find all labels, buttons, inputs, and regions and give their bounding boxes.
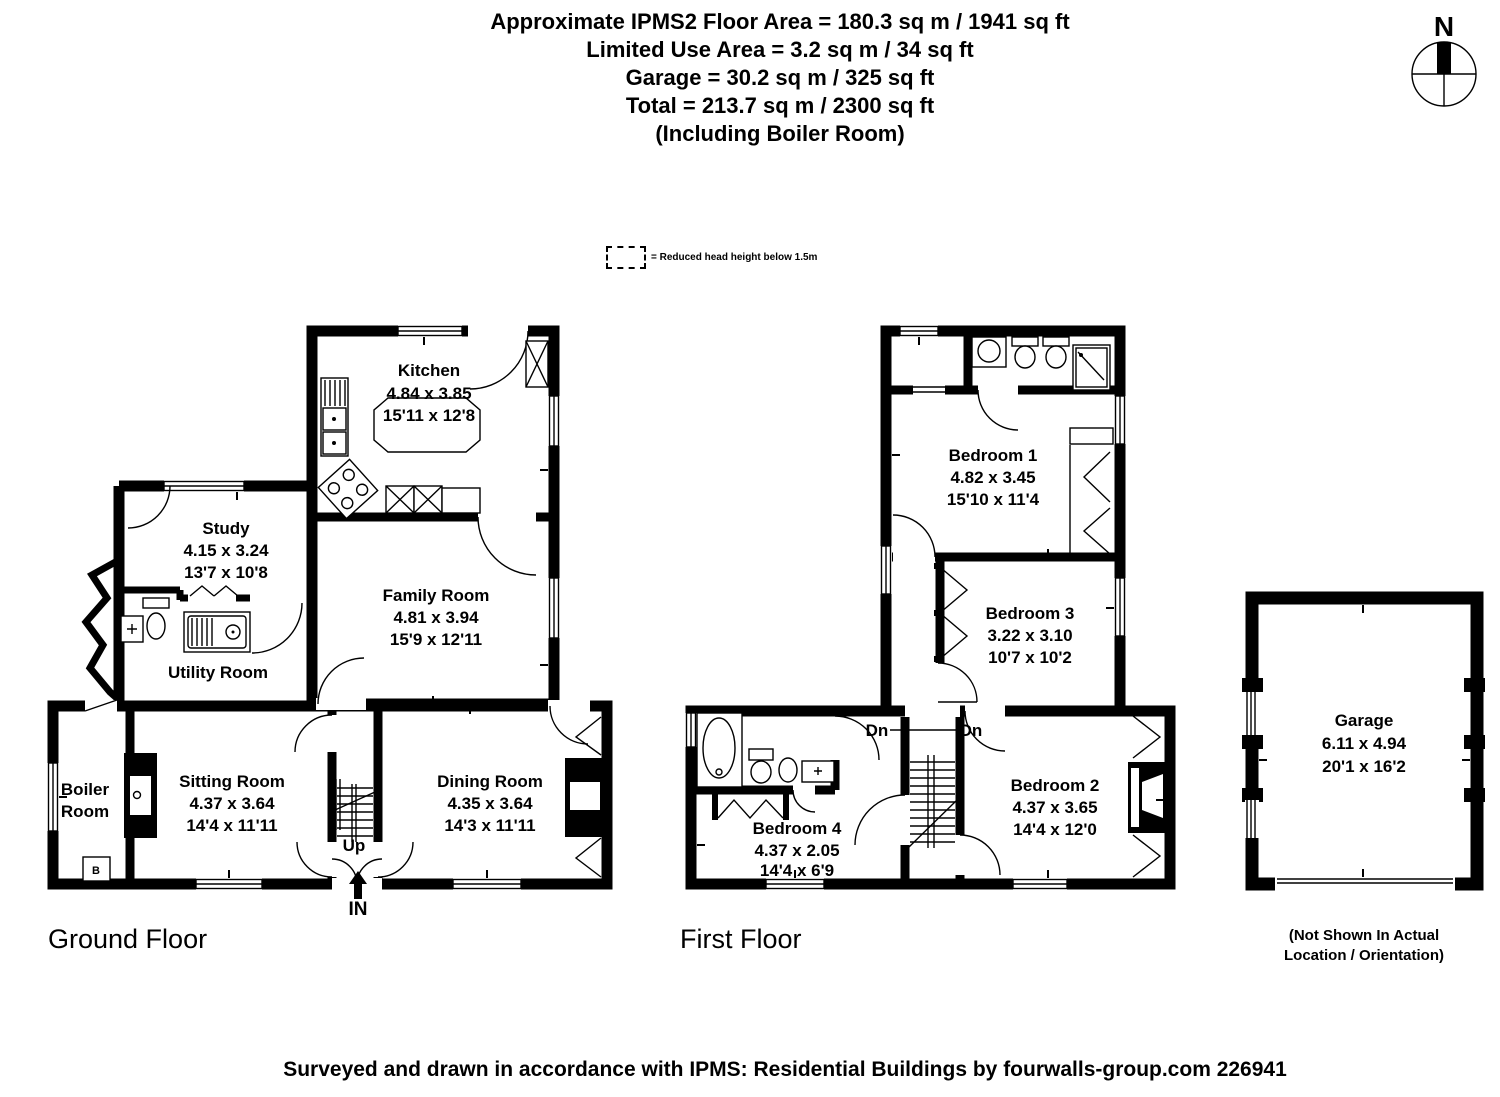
- family-room-imperial: 15'9 x 12'11: [390, 630, 482, 649]
- bedroom1-wardrobes: [1070, 428, 1113, 555]
- kitchen-sink-unit: [321, 378, 348, 456]
- dining-room-imperial: 14'3 x 11'11: [444, 816, 535, 835]
- family-room-name: Family Room: [383, 586, 490, 605]
- first-dimension-ticks: [697, 337, 1164, 878]
- first-floor-plan: Bedroom 1 4.82 x 3.45 15'10 x 11'4 Bedro…: [685, 325, 1170, 890]
- garage-imperial: 20'1 x 16'2: [1322, 757, 1406, 776]
- utility-sink: [184, 612, 250, 652]
- kitchen-cooker: [318, 459, 377, 518]
- stairs-dn-label-right: Dn: [960, 721, 983, 740]
- bathroom-fixtures: [697, 713, 834, 787]
- bedroom3-name: Bedroom 3: [986, 604, 1075, 623]
- study-imperial: 13'7 x 10'8: [184, 563, 268, 582]
- garage-metric: 6.11 x 4.94: [1322, 734, 1407, 753]
- stairwell-walls: [905, 711, 960, 884]
- garage-door: [1275, 877, 1455, 891]
- boiler-unit: B: [83, 857, 110, 881]
- dining-room-name: Dining Room: [437, 772, 543, 791]
- family-room-metric: 4.81 x 3.94: [393, 608, 479, 627]
- garage-name: Garage: [1335, 711, 1394, 730]
- utility-room-name: Utility Room: [168, 663, 268, 682]
- bedroom2-name: Bedroom 2: [1011, 776, 1100, 795]
- boiler-room-name-2: Room: [61, 802, 109, 821]
- study-metric: 4.15 x 3.24: [183, 541, 269, 560]
- wc-basin: [121, 616, 143, 642]
- floorplan-page: Approximate IPMS2 Floor Area = 180.3 sq …: [0, 0, 1500, 1097]
- bedroom1-imperial: 15'10 x 11'4: [947, 490, 1040, 509]
- bedroom2-imperial: 14'4 x 12'0: [1013, 820, 1097, 839]
- bathtub: [697, 713, 742, 787]
- bedroom3-metric: 3.22 x 3.10: [987, 626, 1072, 645]
- kitchen-name: Kitchen: [398, 361, 460, 380]
- ensuite-toilet-2: [1043, 337, 1069, 368]
- ensuite-fixtures: [972, 337, 1110, 390]
- stairs-dn-label-left: Dn: [866, 721, 889, 740]
- bedroom1-metric: 4.82 x 3.45: [950, 468, 1035, 487]
- sitting-room-name: Sitting Room: [179, 772, 285, 791]
- ensuite-basin: [972, 337, 1006, 367]
- entrance-in-label: IN: [349, 899, 368, 920]
- bathroom-toilet: [749, 749, 773, 783]
- bedroom4-metric: 4.37 x 2.05: [754, 841, 839, 860]
- boiler-b-label: B: [92, 865, 100, 877]
- bedroom3-imperial: 10'7 x 10'2: [988, 648, 1072, 667]
- dining-room-metric: 4.35 x 3.64: [447, 794, 533, 813]
- compass: N: [1412, 11, 1476, 106]
- bathroom-bidet: [779, 758, 797, 782]
- first-stairs: [890, 730, 957, 848]
- north-arrow-icon: [1437, 42, 1451, 74]
- sitting-room-imperial: 14'4 x 11'11: [186, 816, 277, 835]
- study-name: Study: [202, 519, 250, 538]
- kitchen-metric: 4.84 x 3.85: [386, 384, 471, 403]
- ground-floor-plan: B Kitchen 4.84 x 3.85 15'11 x 12'8 Study…: [47, 325, 607, 920]
- sitting-room-metric: 4.37 x 3.64: [189, 794, 275, 813]
- kitchen-imperial: 15'11 x 12'8: [383, 406, 475, 425]
- bedroom4-name: Bedroom 4: [753, 819, 842, 838]
- plan-drawing: N: [0, 0, 1500, 1097]
- bedroom4-imperial: 14'4 x 6'9: [760, 861, 834, 880]
- bedroom1-name: Bedroom 1: [949, 446, 1038, 465]
- wc-toilet: [143, 598, 169, 639]
- bedroom2-wardrobes-chimney: [1128, 716, 1170, 877]
- wc-partition-walls: [119, 590, 250, 600]
- kitchen-base-cabinets: [386, 486, 480, 513]
- wc-bifold-door: [190, 586, 238, 596]
- closet-door-leaf: [913, 387, 945, 392]
- sitting-room-fireplace: [124, 753, 157, 838]
- ground-stairs: [335, 784, 375, 842]
- ensuite-shower: [1073, 345, 1110, 390]
- ensuite-toilet-1: [1012, 337, 1038, 368]
- garage-plan: Garage 6.11 x 4.94 20'1 x 16'2: [1242, 598, 1485, 891]
- bathroom-vanity: [802, 761, 834, 782]
- bedroom2-metric: 4.37 x 3.65: [1012, 798, 1097, 817]
- kitchen-tall-cupboard: [526, 341, 548, 387]
- boiler-room-name-1: Boiler: [61, 780, 110, 799]
- compass-north-label: N: [1434, 11, 1454, 42]
- stairs-up-label: Up: [343, 836, 366, 855]
